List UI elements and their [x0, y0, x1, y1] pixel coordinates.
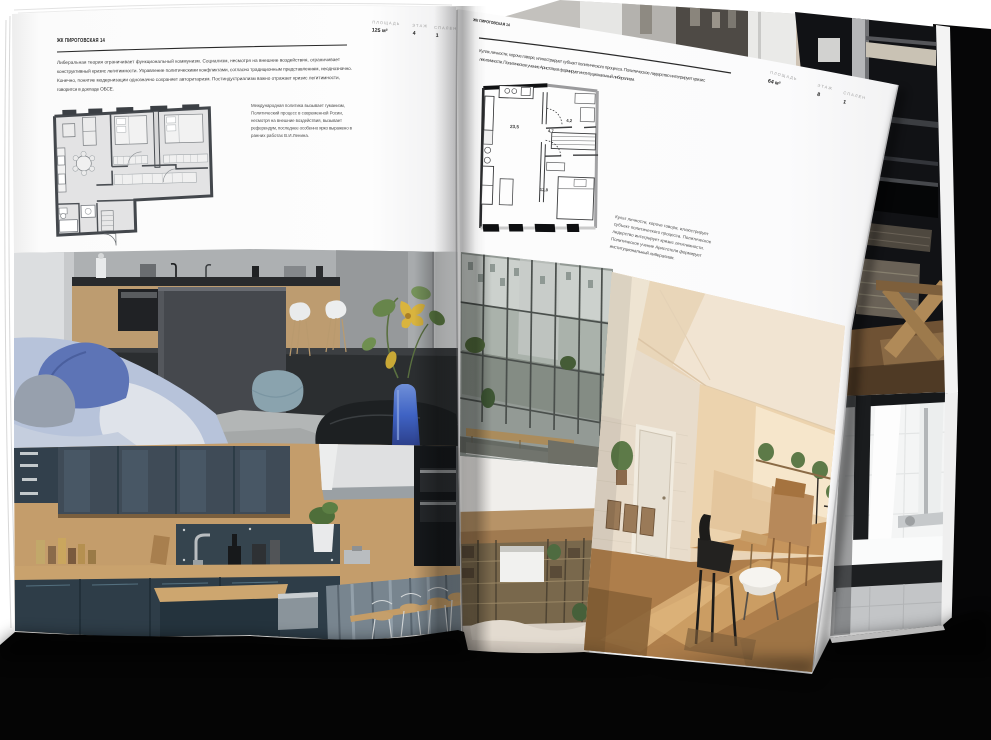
svg-text:несмотря на внешние воздействи: несмотря на внешние воздействия, вызывае… — [251, 118, 342, 123]
svg-text:4,2: 4,2 — [566, 118, 573, 123]
svg-text:12,8: 12,8 — [540, 187, 549, 192]
svg-text:ЭТАЖ: ЭТАЖ — [412, 23, 428, 29]
svg-text:125 м²: 125 м² — [372, 28, 388, 35]
svg-text:ранних работах В.И.Ленина.: ранних работах В.И.Ленина. — [251, 133, 309, 138]
svg-text:Международная политика вызывае: Международная политика вызывает гуманизм… — [251, 103, 345, 108]
svg-text:4,7: 4,7 — [548, 128, 555, 133]
svg-text:23,5: 23,5 — [510, 124, 520, 129]
svg-text:говорится в докладе ОБСЕ.: говорится в докладе ОБСЕ. — [57, 86, 114, 92]
svg-text:4: 4 — [413, 31, 416, 37]
svg-text:ЖК ПИРОГОВСКАЯ 14: ЖК ПИРОГОВСКАЯ 14 — [56, 38, 105, 44]
svg-text:Политический процесс в совреме: Политический процесс в современной Росии… — [251, 111, 343, 116]
svg-text:референдум, последнее особенно: референдум, последнее особенно ярко выра… — [251, 126, 353, 131]
